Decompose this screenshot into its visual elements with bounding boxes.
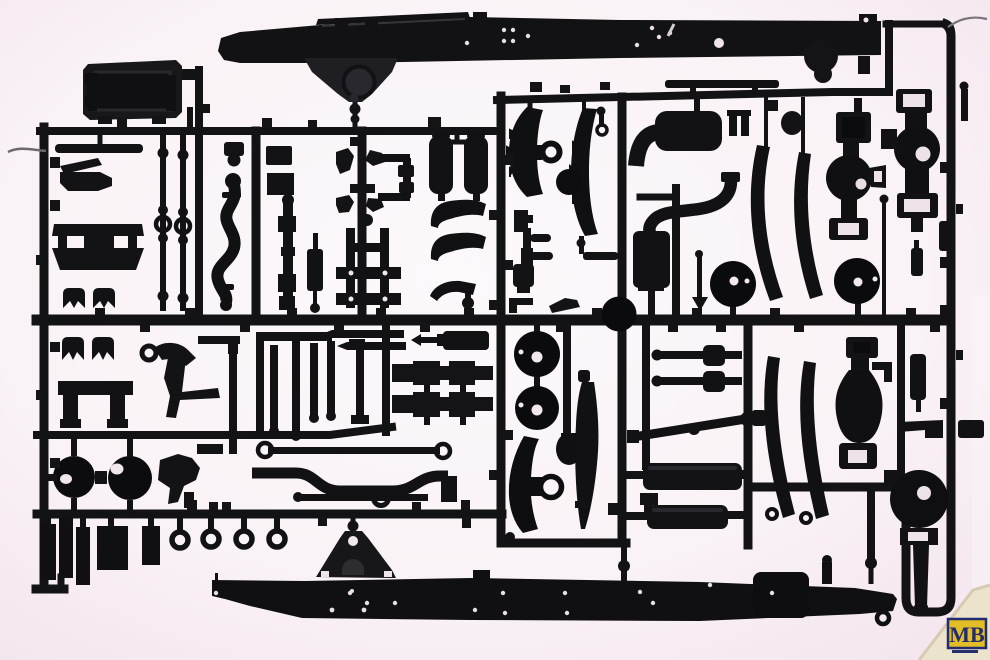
svg-text:MB: MB (949, 622, 985, 647)
